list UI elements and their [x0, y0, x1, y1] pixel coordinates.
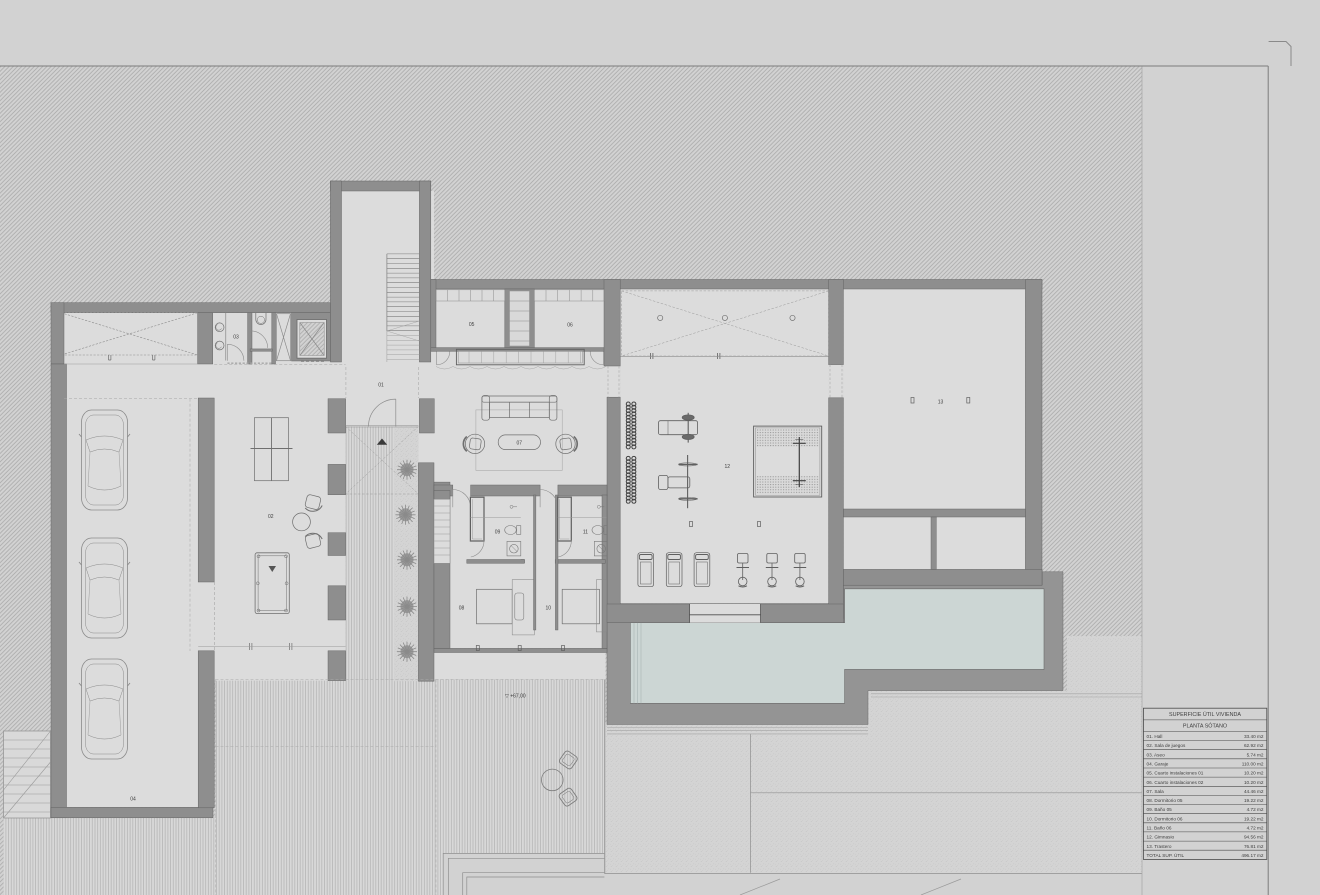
svg-text:04: 04 — [130, 797, 136, 803]
svg-text:PLANTA SÓTANO: PLANTA SÓTANO — [1183, 723, 1227, 730]
svg-text:33.40 m2: 33.40 m2 — [1244, 734, 1264, 739]
svg-text:01: 01 — [378, 382, 384, 388]
svg-text:12: 12 — [725, 464, 731, 470]
svg-text:04. Garaje: 04. Garaje — [1147, 762, 1169, 767]
svg-text:94.56 m2: 94.56 m2 — [1244, 835, 1264, 840]
svg-text:08. Dormitorio 05: 08. Dormitorio 05 — [1147, 798, 1183, 803]
svg-text:11. Baño 06: 11. Baño 06 — [1147, 826, 1172, 831]
svg-text:07. Sala: 07. Sala — [1147, 789, 1165, 794]
svg-text:10: 10 — [546, 605, 552, 611]
svg-text:76.81 m2: 76.81 m2 — [1244, 844, 1264, 849]
svg-text:13: 13 — [938, 400, 944, 406]
svg-text:▽ +67,00: ▽ +67,00 — [505, 694, 526, 700]
svg-text:62.92 m2: 62.92 m2 — [1244, 743, 1264, 748]
svg-text:03: 03 — [233, 335, 239, 341]
svg-text:19.22 m2: 19.22 m2 — [1244, 816, 1264, 821]
svg-text:03. Aseo: 03. Aseo — [1147, 752, 1166, 757]
svg-text:06: 06 — [567, 323, 573, 329]
svg-text:TOTAL SUP. ÚTIL: TOTAL SUP. ÚTIL — [1147, 852, 1185, 858]
svg-text:19.22 m2: 19.22 m2 — [1244, 798, 1264, 803]
svg-text:09. Baño 05: 09. Baño 05 — [1147, 807, 1173, 812]
svg-text:11: 11 — [583, 530, 588, 536]
svg-text:5.74 m2: 5.74 m2 — [1247, 752, 1264, 757]
svg-text:01. Hall: 01. Hall — [1147, 734, 1163, 739]
svg-text:SUPERFICIE ÚTIL VIVIENDA: SUPERFICIE ÚTIL VIVIENDA — [1169, 711, 1241, 718]
svg-text:05. Cuarto instalaciones 01: 05. Cuarto instalaciones 01 — [1147, 771, 1204, 776]
svg-text:4.72 m2: 4.72 m2 — [1247, 807, 1264, 812]
svg-text:02: 02 — [268, 514, 274, 520]
svg-text:496.17 m2: 496.17 m2 — [1241, 853, 1264, 858]
svg-text:13. Trastero: 13. Trastero — [1147, 844, 1172, 849]
svg-text:10.20 m2: 10.20 m2 — [1244, 780, 1264, 785]
svg-text:110.00 m2: 110.00 m2 — [1242, 762, 1264, 767]
svg-text:07: 07 — [517, 440, 523, 446]
svg-text:02. Sala de juegos: 02. Sala de juegos — [1147, 743, 1186, 748]
svg-text:12. Gimnasio: 12. Gimnasio — [1147, 835, 1175, 840]
svg-text:06. Cuarto instalaciones 02: 06. Cuarto instalaciones 02 — [1147, 780, 1204, 785]
svg-text:09: 09 — [495, 530, 501, 536]
svg-text:10. Dormitorio 06: 10. Dormitorio 06 — [1147, 816, 1183, 821]
svg-text:08: 08 — [459, 605, 465, 611]
svg-text:10.20 m2: 10.20 m2 — [1244, 771, 1264, 776]
svg-text:44.46 m2: 44.46 m2 — [1244, 789, 1264, 794]
svg-text:05: 05 — [469, 322, 475, 328]
svg-text:4.72 m2: 4.72 m2 — [1247, 826, 1264, 831]
